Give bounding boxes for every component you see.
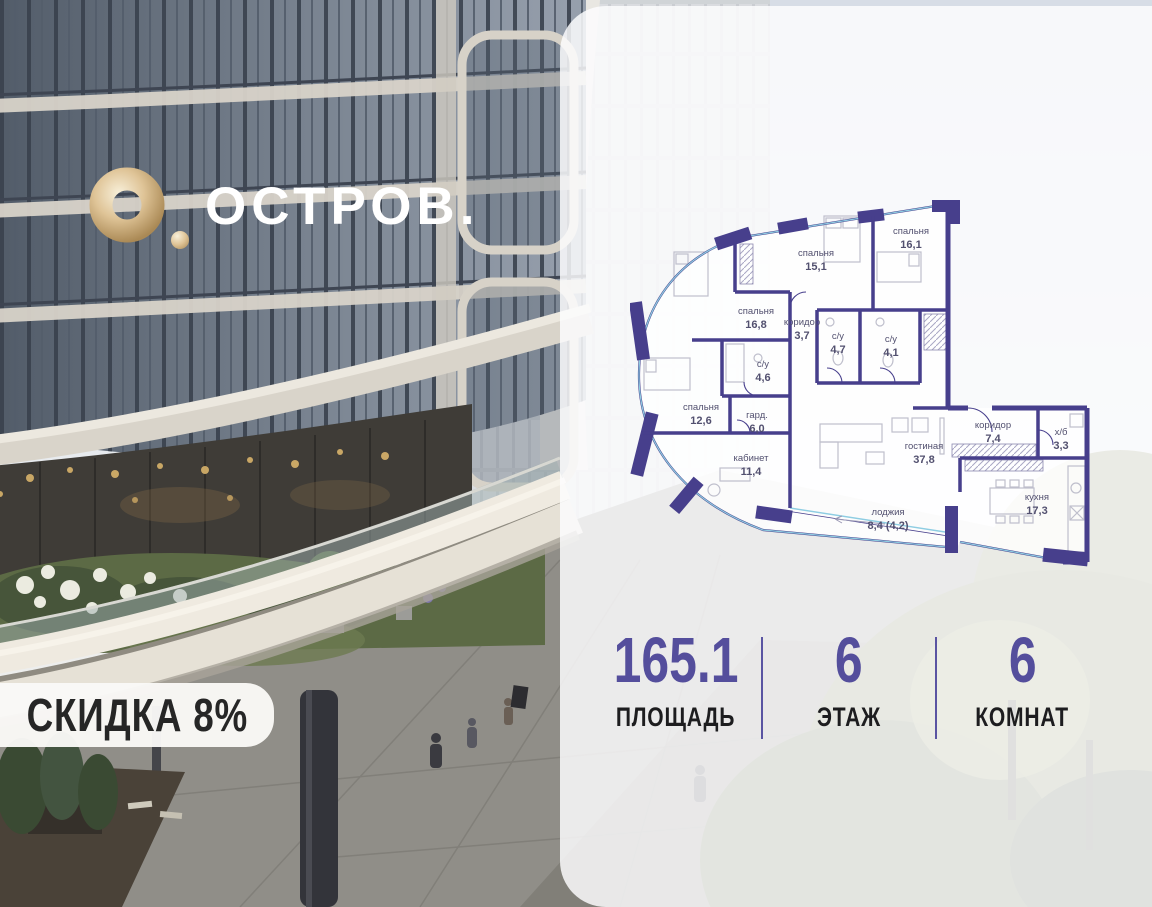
stat-floor: 6 ЭТАЖ (763, 628, 934, 748)
room-area: 7,4 (985, 433, 1001, 445)
room-area: 4,1 (883, 347, 898, 359)
room-label: спальня (738, 306, 774, 317)
stat-floor-value: 6 (835, 628, 863, 692)
stat-area-label: ПЛОЩАДЬ (616, 702, 735, 733)
room-label: гард. (746, 410, 768, 421)
room-label: кухня (1025, 492, 1049, 503)
room-label: с/у (832, 331, 844, 342)
room-area: 4,6 (755, 372, 770, 384)
room-area: 16,8 (745, 319, 766, 331)
room-label: с/у (757, 359, 769, 370)
discount-label: СКИДКА 8% (26, 688, 247, 742)
stat-rooms: 6 КОМНАТ (937, 628, 1108, 748)
room-label: спальня (683, 402, 719, 413)
discount-badge: СКИДКА 8% (0, 683, 274, 747)
room-area: 37,8 (913, 454, 934, 466)
room-label: х/б (1055, 427, 1068, 438)
brand-logo: ОСТРОВ. (80, 150, 560, 280)
room-area: 12,6 (690, 415, 711, 427)
room-area: 3,7 (794, 330, 809, 342)
room-area: 8,4 (4,2) (868, 520, 909, 532)
room-area: 4,7 (830, 344, 845, 356)
menu-board (511, 685, 529, 709)
room-area: 17,3 (1026, 505, 1047, 517)
room-label: лоджия (871, 507, 904, 518)
room-label: спальня (798, 248, 834, 259)
stat-area-value: 165.1 (613, 628, 738, 692)
stat-floor-label: ЭТАЖ (817, 702, 881, 733)
room-area: 3,3 (1053, 440, 1068, 452)
room-label: спальня (893, 226, 929, 237)
room-area: 6,0 (749, 423, 764, 435)
stat-rooms-value: 6 (1008, 628, 1036, 692)
stat-area: 165.1 ПЛОЩАДЬ (590, 628, 761, 748)
info-panel: спальня 15,1 спальня 16,1 спальня 16,8 к… (560, 6, 1152, 907)
room-label: с/у (885, 334, 897, 345)
room-label: коридор (784, 317, 820, 328)
listing-banner: спальня 15,1 спальня 16,1 спальня 16,8 к… (0, 0, 1152, 907)
brand-o-icon (80, 150, 210, 270)
room-label: гостиная (905, 441, 944, 452)
room-area: 16,1 (900, 239, 921, 251)
floor-plan: спальня 15,1 спальня 16,1 спальня 16,8 к… (630, 190, 1100, 580)
brand-name: ОСТРОВ. (205, 176, 479, 237)
stat-rooms-label: КОМНАТ (975, 702, 1069, 733)
apartment-stats: 165.1 ПЛОЩАДЬ 6 ЭТАЖ 6 КОМНАТ (590, 628, 1108, 748)
room-area: 15,1 (805, 261, 826, 273)
room-label: коридор (975, 420, 1011, 431)
room-label: кабинет (734, 453, 770, 464)
room-area: 11,4 (741, 466, 763, 478)
